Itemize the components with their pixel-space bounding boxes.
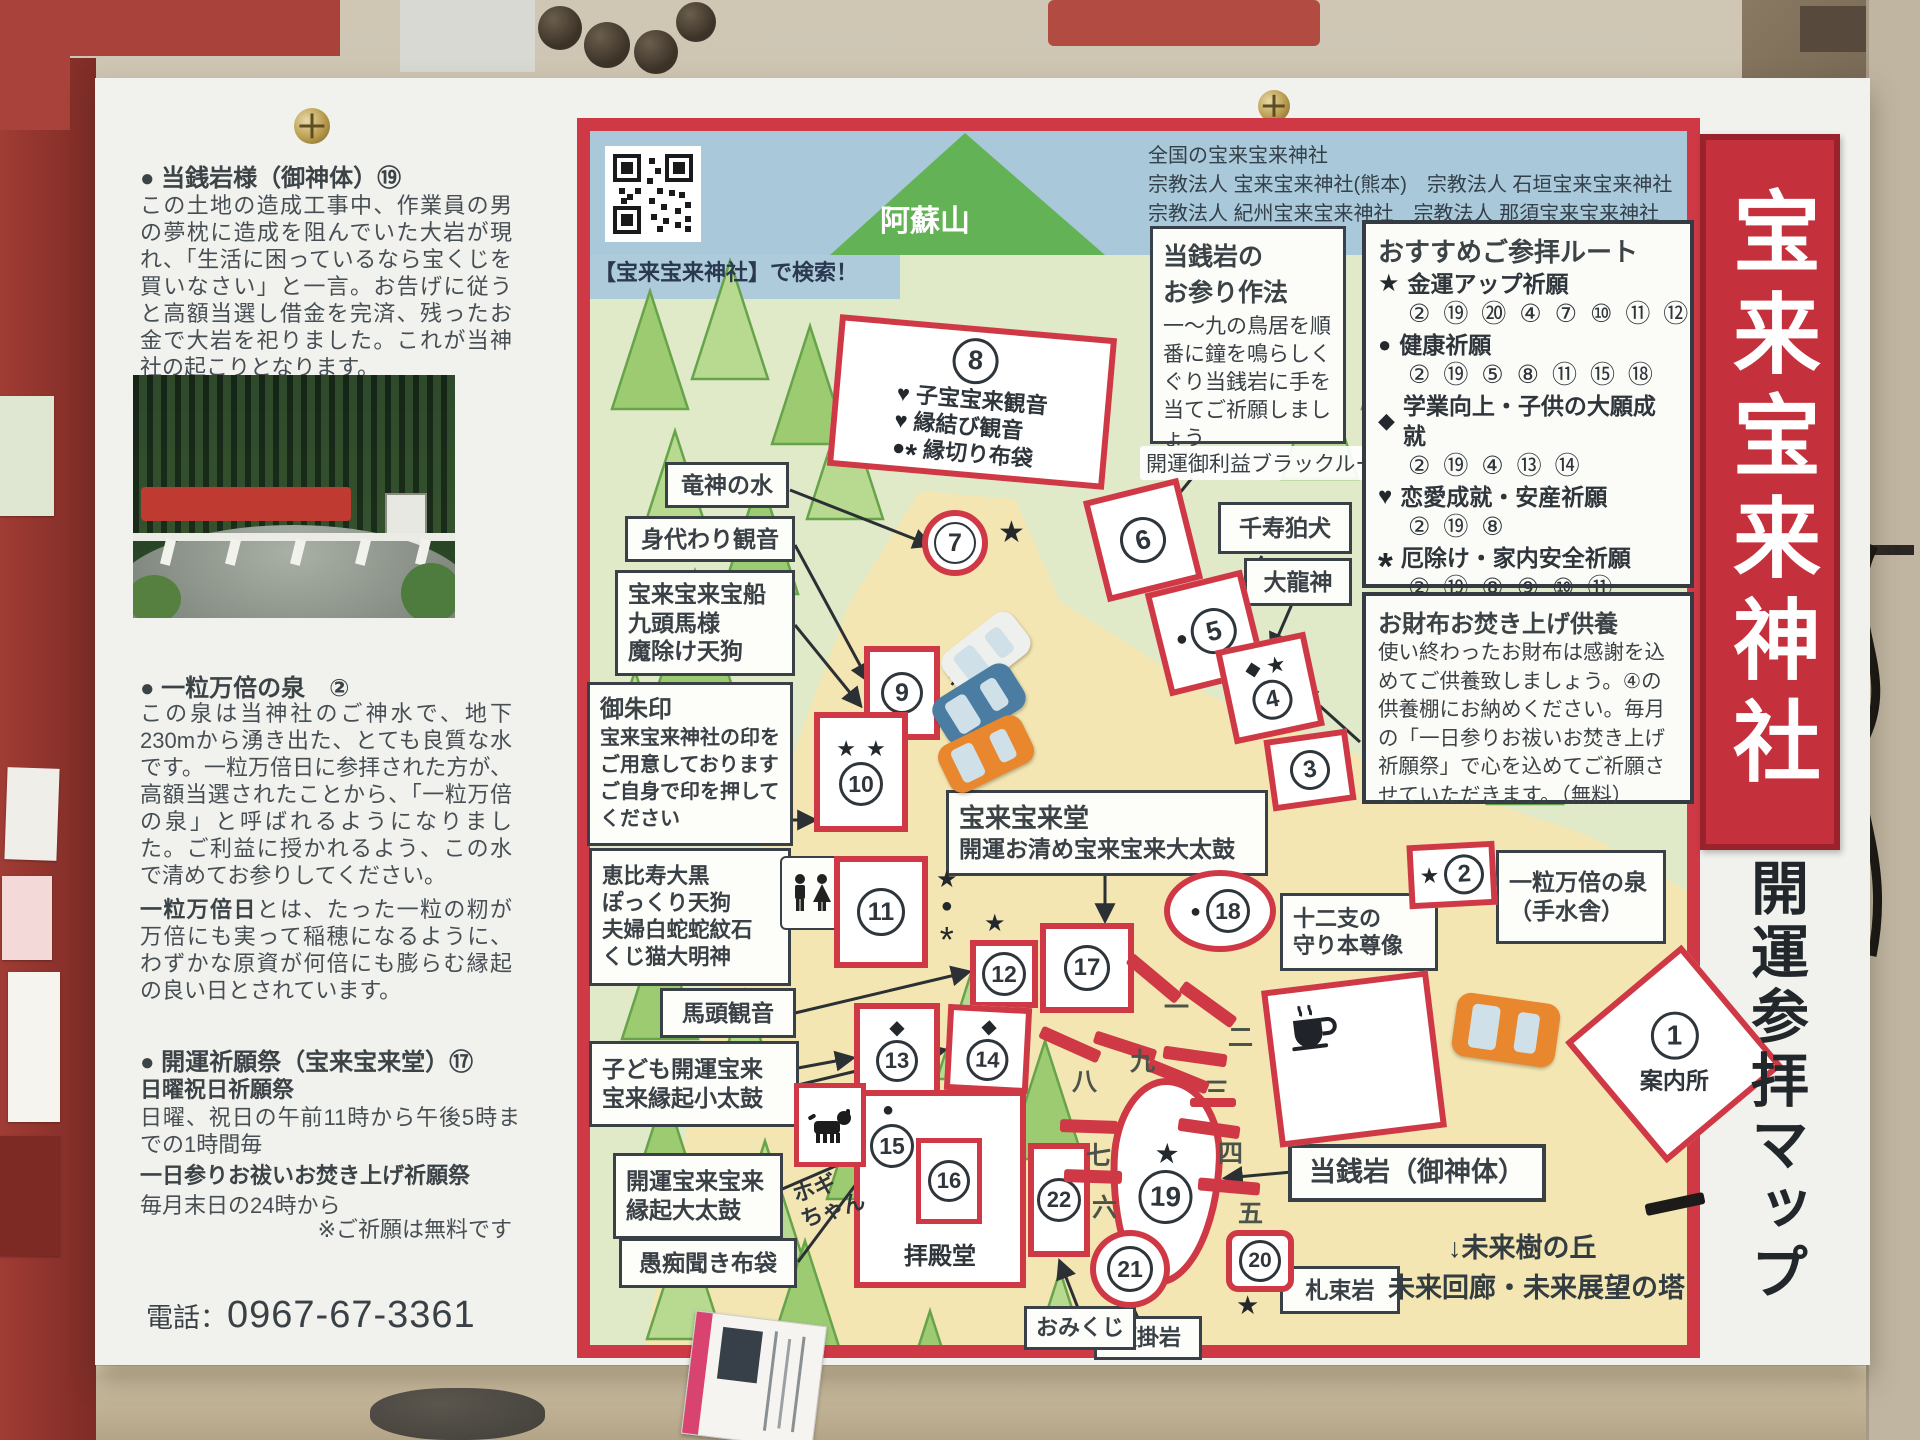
- wood-knob: [634, 30, 678, 74]
- map-spot-18: ● 18: [1164, 870, 1276, 952]
- spot-number: 18: [1206, 889, 1250, 933]
- torii-bar: [1064, 1169, 1122, 1184]
- label-text: くじ猫大明神: [602, 944, 731, 971]
- mountain-label: 阿蘇山: [880, 196, 970, 240]
- spot-number: 1: [1650, 1012, 1698, 1060]
- map-spot-20: 20: [1226, 1230, 1294, 1292]
- phone-label: 電話：: [146, 1296, 227, 1335]
- label-text: 身代わり観音: [641, 525, 779, 554]
- shrine-name-vertical: 宝来宝来神社: [1707, 186, 1834, 798]
- qr-caption: 【宝来宝来神社】で検索！: [594, 255, 858, 287]
- map-spot-14: ◆ 14: [944, 1004, 1032, 1094]
- cafe-box: [1261, 970, 1447, 1147]
- label-senju: 千寿狛犬: [1218, 502, 1352, 554]
- torii-number: 八: [1072, 1062, 1097, 1098]
- photo-bush: [401, 563, 455, 618]
- spot8-items: ♥ 子宝宝来観音 ♥ 縁結び観音 ●* 縁切り布袋: [891, 379, 1049, 473]
- screw: [294, 108, 330, 144]
- wood-knob: [584, 22, 630, 68]
- heart-icon: ♥: [896, 380, 911, 406]
- map-spot-21: 21: [1090, 1230, 1170, 1308]
- diamond-icon: ◆: [1243, 658, 1263, 683]
- haiden-label: 拝殿堂: [860, 1236, 1020, 1271]
- term-bold: 一粒万倍日: [140, 897, 257, 922]
- label-takarabune: 宝来宝来宝船 九頭馬様 魔除け天狗: [615, 570, 795, 676]
- dot-icon: ●: [1173, 628, 1190, 650]
- section3-line1: 日曜、祝日の午前11時から午後5時までの1時間毎: [140, 1104, 520, 1158]
- mirai-line1: ↓未来樹の丘: [1448, 1226, 1597, 1265]
- torii-number: 五: [1238, 1194, 1263, 1230]
- map-spot-4: ◆★ 4: [1215, 631, 1325, 744]
- small-poster: [4, 767, 59, 861]
- phone-number: 0967-67-3361: [227, 1294, 476, 1337]
- section1-body: この土地の造成工事中、作業員の男の夢枕に造成を阻んでいた大岩が現れ、「生活に困っ…: [140, 192, 512, 381]
- map-spot-17: 17: [1040, 923, 1134, 1013]
- asterisk-icon: *: [904, 446, 917, 465]
- label-ryujin: 竜神の水: [665, 462, 789, 508]
- spot-number: 21: [1107, 1246, 1153, 1292]
- coffee-cup-icon: [1281, 998, 1343, 1056]
- spot11-symbols: ★ ● *: [936, 868, 958, 942]
- torii-bar: [1060, 1119, 1118, 1134]
- label-migawari: 身代わり観音: [625, 516, 795, 562]
- label-title: 宝来宝来堂: [959, 802, 1089, 835]
- label-text: 子ども開運宝来: [602, 1055, 763, 1084]
- label-ebisu: 恵比寿大黒 ぽっくり天狗 夫婦白蛇蛇紋石 くじ猫大明神: [589, 848, 791, 986]
- route5-label: 厄除け・家内安全祈願: [1401, 543, 1631, 573]
- mirai-line2: 未来回廊・未来展望の塔: [1388, 1266, 1685, 1305]
- qr-pattern: [611, 152, 695, 236]
- label-text: 夫婦白蛇蛇紋石: [602, 917, 753, 944]
- star-icon: ★: [998, 518, 1025, 548]
- map-title-vertical: 開運参拝マップ: [1732, 858, 1816, 1318]
- label-text: 宝来縁起小太鼓: [602, 1084, 763, 1113]
- top-concrete-block: [400, 0, 535, 72]
- small-poster: [0, 1136, 60, 1256]
- stone-on-ledge: [370, 1388, 545, 1440]
- route4-label: 恋愛成就・安産祈願: [1400, 482, 1607, 512]
- map-spot-22: 22: [1028, 1143, 1090, 1257]
- card-text-line: [777, 1339, 791, 1429]
- torii-number: 二: [1228, 1018, 1253, 1054]
- spot-number: 3: [1287, 747, 1332, 792]
- photo-shrine-roof: [141, 487, 351, 521]
- label-text: 宝来宝来神社の印をご用意しております ご自身で印を押してください: [600, 725, 780, 833]
- label-text: 愚痴聞き布袋: [639, 1249, 777, 1278]
- label-taiko: 開運宝来宝来 縁起大太鼓: [613, 1153, 783, 1239]
- star-icon: ★: [1419, 865, 1440, 888]
- routes-title: おすすめご参拝ルート: [1378, 232, 1678, 269]
- route3-stops: ② ⑲ ④ ⑬ ⑭: [1378, 451, 1678, 482]
- map-spot-7: 7: [922, 510, 988, 576]
- star-icon: ★: [836, 738, 856, 760]
- card-text-line: [791, 1337, 806, 1433]
- top-right-red-beam: [1048, 0, 1320, 46]
- route2-stops: ② ⑲ ⑤ ⑧ ⑪ ⑮ ⑱: [1378, 360, 1678, 391]
- spot-number: 6: [1115, 512, 1171, 568]
- label-text: 当銭岩（御神体）: [1309, 1156, 1525, 1190]
- card-photo-thumb: [717, 1327, 763, 1383]
- small-poster: [0, 396, 54, 516]
- shrine-rock-photo: [133, 375, 455, 618]
- toilet-icon: [789, 872, 835, 914]
- route2-label: 健康祈願: [1399, 330, 1491, 360]
- label-izumi-temizusha: 一粒万倍の泉 （手水舎）: [1496, 850, 1666, 944]
- label-kodomo: 子ども開運宝来 宝来縁起小太鼓: [589, 1041, 799, 1127]
- torii-bar: [1190, 1098, 1236, 1107]
- dot-icon: ●: [882, 1100, 894, 1120]
- spot-number: 4: [1249, 676, 1296, 723]
- spot-number: 9: [881, 672, 923, 714]
- haiden-hall-box: ● 15 16 拝殿堂: [854, 1090, 1026, 1288]
- label-omikuji: おみくじ: [1024, 1306, 1136, 1350]
- label-bato: 馬頭観音: [660, 988, 796, 1038]
- signboard-photo: ● 当銭岩様（御神体）⑲ この土地の造成工事中、作業員の男の夢枕に造成を阻んでい…: [0, 0, 1920, 1440]
- label-satsutaba: 札束岩: [1280, 1266, 1400, 1314]
- section3-line2: 毎月末日の24時から: [140, 1192, 520, 1219]
- label-title: 御朱印: [600, 695, 672, 725]
- label-goshuin: 御朱印 宝来宝来神社の印をご用意しております ご自身で印を押してください: [587, 682, 793, 846]
- spot-number: 12: [982, 952, 1026, 996]
- label-text: 開運宝来宝来: [626, 1167, 764, 1196]
- torii-number: 九: [1130, 1042, 1155, 1078]
- section2-body: この泉は当神社のご神水で、地下230mから湧き出た、とても良質な水です。一粒万倍…: [140, 700, 512, 889]
- heart-icon: ♥: [893, 407, 908, 433]
- worship-manner-box: 当銭岩の お参り作法 一〜九の鳥居を順番に鐘を鳴らしくぐり当銭岩に手を当てご祈願…: [1150, 226, 1346, 444]
- spot4-symbols: ◆★: [1243, 652, 1288, 682]
- label-text: 一粒万倍の泉: [1509, 868, 1647, 897]
- spot10-symbols: ★★: [836, 738, 885, 760]
- top-left-red-post: [0, 0, 70, 130]
- label-text: （手水舎）: [1509, 897, 1624, 926]
- map-spot-10: ★★ 10: [814, 712, 908, 832]
- route1-label: 金運アップ祈願: [1408, 269, 1569, 299]
- label-text: 守り本尊像: [1293, 932, 1403, 960]
- star-icon: ★: [866, 738, 886, 760]
- label-text: ぽっくり天狗: [602, 890, 731, 917]
- route4-stops: ② ⑲ ⑧: [1378, 512, 1678, 543]
- route1-stops: ② ⑲ ⑳ ④ ⑦ ⑩ ⑪ ⑫: [1378, 299, 1678, 330]
- label-text: 開運お清め宝来宝来大太鼓: [959, 835, 1235, 864]
- label-text: 大龍神: [1264, 568, 1333, 597]
- worship-title-1: 当銭岩の: [1163, 237, 1333, 273]
- label-guchi: 愚痴聞き布袋: [619, 1238, 797, 1288]
- wallet-body: 使い終わったお財布は感謝を込めてご供養致しましょう。④の供養棚にお納めください。…: [1378, 639, 1678, 810]
- label-tosengan: 当銭岩（御神体）: [1288, 1144, 1546, 1202]
- label-text: 竜神の水: [681, 471, 773, 500]
- label-text: 恵比寿大黒: [602, 863, 710, 890]
- star-icon: ★: [984, 912, 1006, 936]
- star-icon: ★: [1264, 652, 1288, 678]
- wallet-burning-box: お財布お焚き上げ供養 使い終わったお財布は感謝を込めてご供養致しましょう。④の供…: [1362, 592, 1694, 804]
- label-text: 縁起大太鼓: [626, 1196, 741, 1225]
- spot1-content: 1 案内所: [1640, 1012, 1709, 1096]
- map-spot-8: 8 ♥ 子宝宝来観音 ♥ 縁結び観音 ●* 縁切り布袋: [827, 314, 1117, 490]
- label-text: 馬頭観音: [682, 999, 774, 1028]
- label-text: 九頭馬様: [628, 609, 720, 638]
- shrine-network-list: 全国の宝来宝来神社 宗教法人 宝来宝来神社(熊本) 宗教法人 石垣宝来宝来神社 …: [1148, 142, 1672, 229]
- map-spot-13: ◆ 13: [854, 1003, 940, 1097]
- section1-heading: ● 当銭岩様（御神体）⑲: [140, 158, 401, 193]
- diamond-icon: ◆: [981, 1017, 997, 1038]
- dog-icon: [806, 1105, 854, 1145]
- torii-number: 六: [1092, 1188, 1117, 1224]
- dot-icon: ●: [1190, 902, 1201, 920]
- label-text: 十二支の: [1293, 905, 1381, 933]
- spot-number: 22: [1037, 1178, 1081, 1222]
- label-horaido: 宝来宝来堂 開運お清め宝来宝来大太鼓: [946, 790, 1268, 876]
- label-text: 宝来宝来宝船: [628, 580, 766, 609]
- photo-shimenawa-rope: [133, 533, 455, 541]
- map-spot-3: 3: [1263, 729, 1356, 812]
- spot-number: 13: [876, 1040, 918, 1082]
- route2-symbol-icon: ●: [1378, 334, 1391, 356]
- small-poster: [2, 876, 52, 960]
- spot-number: 15: [870, 1124, 914, 1168]
- spot-number: 19: [1138, 1169, 1194, 1225]
- wood-knob: [538, 6, 582, 50]
- spot-number: 20: [1239, 1240, 1281, 1282]
- asterisk-icon: *: [940, 929, 954, 951]
- annaijo-label: 案内所: [1640, 1062, 1709, 1096]
- spot-number: 8: [951, 336, 1001, 386]
- spot-number: 17: [1064, 945, 1110, 991]
- wallet-title: お財布お焚き上げ供養: [1378, 604, 1678, 639]
- section2-term-paragraph: 一粒万倍日とは、たった一粒の籾が万倍にも実って稲穂になるように、わずかな原資が何…: [140, 896, 512, 1004]
- diamond-icon: ◆: [889, 1018, 904, 1038]
- recommended-routes-box: おすすめご参拝ルート ★金運アップ祈願 ② ⑲ ⑳ ④ ⑦ ⑩ ⑪ ⑫ ●健康祈…: [1362, 220, 1694, 588]
- spot-number: 10: [839, 762, 883, 806]
- map-spot-2: ★ 2: [1406, 841, 1497, 910]
- route4-symbol-icon: ♥: [1378, 485, 1392, 509]
- route3-symbol-icon: ◆: [1378, 410, 1395, 432]
- route5-symbol-icon: *: [1378, 556, 1393, 579]
- label-text: 魔除け天狗: [628, 637, 743, 666]
- phone-line: 電話： 0967-67-3361: [146, 1294, 476, 1337]
- shrine-name-banner: 宝来宝来神社: [1700, 134, 1840, 850]
- section3-sub1: 日曜祝日祈願祭: [140, 1076, 520, 1103]
- label-text: 札束岩: [1306, 1276, 1375, 1305]
- spot-number: 14: [965, 1038, 1009, 1082]
- map-spot-11: 11: [834, 856, 928, 968]
- spot-number: 11: [857, 888, 905, 936]
- route1-symbol-icon: ★: [1378, 272, 1400, 296]
- spot-number: 2: [1443, 853, 1485, 895]
- map-spot-12: 12: [970, 940, 1038, 1008]
- small-poster: [8, 972, 60, 1122]
- bottom-wood-ledge: [0, 1366, 1920, 1440]
- label-text: おみくじ: [1036, 1314, 1124, 1342]
- network-line2: 宗教法人 宝来宝来神社(熊本) 宗教法人 石垣宝来宝来神社: [1148, 171, 1672, 200]
- torii-number: 四: [1218, 1134, 1243, 1170]
- section3-sub2: 一日参りお祓いお焚き上げ祈願祭: [140, 1162, 520, 1189]
- network-title: 全国の宝来宝来神社: [1148, 142, 1672, 171]
- spot-number: 7: [934, 522, 976, 564]
- dot-icon: ●: [941, 896, 953, 916]
- star-icon: ★: [1236, 1292, 1259, 1318]
- star-icon: ★: [936, 868, 958, 892]
- star-icon: ★: [1154, 1140, 1180, 1169]
- route3-label: 学業向上・子供の大願成就: [1403, 391, 1678, 451]
- map-spot-16: 16: [916, 1138, 982, 1224]
- torii-number: 七: [1086, 1136, 1111, 1172]
- business-card: [681, 1310, 827, 1440]
- section2-heading: ● 一粒万倍の泉 ②: [140, 668, 349, 703]
- worship-title-2: お参り作法: [1163, 273, 1333, 309]
- spot-number: 16: [928, 1160, 970, 1202]
- label-dairyujin: 大龍神: [1244, 558, 1352, 606]
- hogi-dog-box: [794, 1083, 866, 1167]
- card-text-line: [763, 1331, 778, 1431]
- section3-heading: ● 開運祈願祭（宝来宝来堂）⑰: [140, 1042, 473, 1077]
- worship-body: 一〜九の鳥居を順番に鐘を鳴らしくぐり当銭岩に手を当てご祈願しましょう: [1163, 313, 1333, 453]
- label-text: 千寿狛犬: [1239, 514, 1331, 543]
- section3-note: ※ご祈願は無料です: [286, 1216, 512, 1243]
- wood-knob: [676, 2, 716, 42]
- qr-code: [605, 146, 701, 242]
